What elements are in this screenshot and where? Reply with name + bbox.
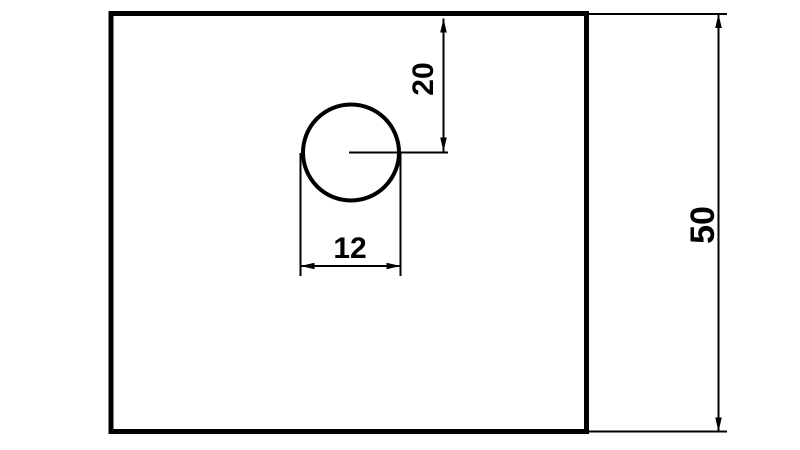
plate-outline [111, 14, 587, 432]
dimension-20-group: 20 [407, 19, 447, 152]
plate-group [111, 14, 587, 432]
dim-12-arrow-right-icon [387, 263, 401, 270]
technical-drawing: 20 12 50 [0, 0, 800, 450]
dimension-12-group: 12 [301, 153, 401, 276]
technical-drawing-canvas: 20 12 50 [0, 0, 800, 450]
dim-50-arrow-up-icon [715, 14, 722, 28]
dim-12-arrow-left-icon [301, 263, 315, 270]
dim-12-label: 12 [333, 232, 366, 265]
dim-20-label: 20 [407, 62, 440, 95]
dimension-50-group: 50 [587, 14, 727, 432]
dim-20-arrow-down-icon [440, 138, 447, 152]
hole-group [303, 105, 448, 201]
dim-20-arrow-up-icon [440, 19, 447, 33]
dim-50-arrow-down-icon [715, 418, 722, 432]
dim-50-label: 50 [684, 206, 722, 244]
